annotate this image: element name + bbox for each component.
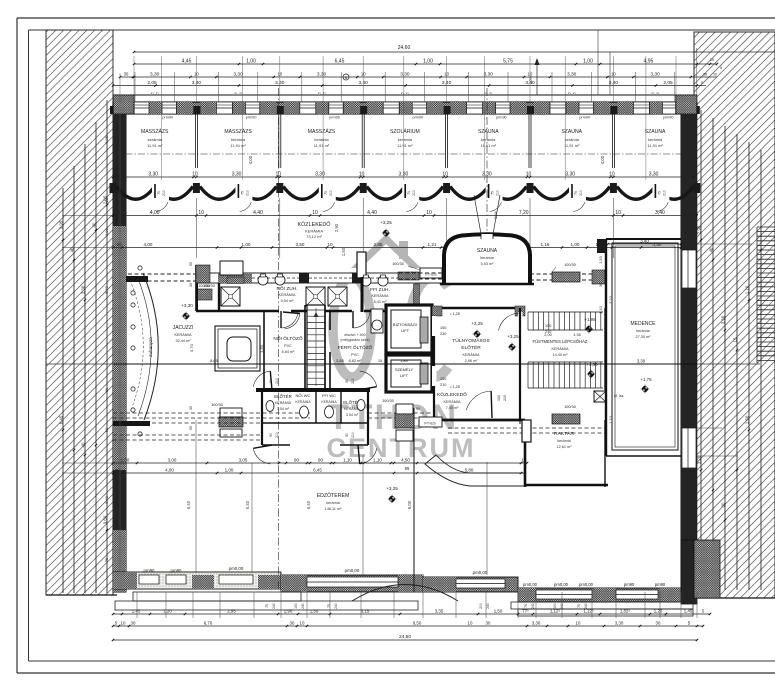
svg-text:M. lsz.: M. lsz. [614, 394, 624, 398]
svg-text:100: 100 [545, 324, 551, 328]
svg-text:40: 40 [115, 468, 121, 473]
svg-text:5,75: 5,75 [503, 59, 513, 65]
svg-text:NŐI ZUH.: NŐI ZUH. [276, 285, 297, 292]
svg-text:30: 30 [290, 621, 295, 626]
svg-text:8,65: 8,65 [210, 358, 219, 363]
svg-text:210: 210 [329, 190, 333, 196]
svg-text:210: 210 [440, 332, 446, 336]
svg-text:1,00: 1,00 [571, 242, 580, 247]
svg-text:FÉRFI ÖLTÖZŐ: FÉRFI ÖLTÖZŐ [338, 344, 373, 351]
svg-text:210: 210 [662, 190, 666, 196]
svg-text:6,40: 6,40 [186, 500, 191, 509]
svg-text:SZAUNA: SZAUNA [477, 248, 498, 254]
svg-text:2,85: 2,85 [374, 242, 383, 247]
svg-text:2,00: 2,00 [544, 333, 551, 337]
svg-text:32,44 m²: 32,44 m² [176, 339, 192, 343]
svg-text:15: 15 [489, 92, 493, 96]
svg-text:6,45: 6,45 [59, 415, 64, 424]
svg-text:3,30: 3,30 [649, 172, 659, 178]
svg-text:40: 40 [81, 442, 86, 447]
svg-text:kerámia: kerámia [231, 137, 246, 142]
svg-text:90: 90 [416, 407, 420, 411]
svg-text:240: 240 [486, 603, 490, 609]
svg-text:prm90: prm90 [579, 116, 590, 120]
svg-text:30: 30 [189, 406, 193, 410]
svg-text:15: 15 [733, 337, 738, 342]
svg-text:3,20: 3,20 [608, 295, 613, 304]
svg-text:10: 10 [426, 210, 432, 216]
svg-text:NŐI ÖLTÖZŐ: NŐI ÖLTÖZŐ [273, 335, 302, 342]
svg-text:1,82⁵: 1,82⁵ [620, 609, 631, 614]
svg-text:5,41 m²: 5,41 m² [374, 300, 388, 304]
svg-text:3,95: 3,95 [59, 220, 64, 229]
svg-text:15: 15 [317, 92, 321, 96]
svg-text:3,40: 3,40 [655, 210, 665, 216]
svg-text:kerámia: kerámia [326, 501, 340, 505]
svg-text:10: 10 [359, 172, 365, 178]
svg-text:pm0,00: pm0,00 [554, 582, 569, 587]
svg-text:15: 15 [484, 92, 488, 96]
svg-text:3,54 m²: 3,54 m² [346, 413, 359, 417]
svg-text:3,30: 3,30 [150, 72, 160, 78]
svg-text:6,40: 6,40 [245, 500, 250, 509]
svg-text:SZOLÁRIUM: SZOLÁRIUM [390, 128, 420, 135]
svg-text:elszívó + 400: elszívó + 400 [344, 333, 365, 337]
svg-text:90: 90 [318, 458, 324, 463]
svg-text:75: 75 [574, 191, 578, 195]
svg-text:1,00: 1,00 [225, 468, 234, 473]
svg-text:1,00: 1,00 [121, 458, 130, 463]
svg-text:prm90: prm90 [663, 116, 674, 120]
svg-text:3,30: 3,30 [233, 72, 243, 78]
svg-text:prm90: prm90 [162, 116, 173, 120]
svg-text:100/30: 100/30 [198, 284, 210, 288]
svg-text:40: 40 [70, 247, 75, 252]
svg-text:SZEMÉLY: SZEMÉLY [395, 367, 414, 372]
svg-text:6,45: 6,45 [313, 468, 322, 473]
svg-text:3,30: 3,30 [399, 172, 409, 178]
svg-text:MASSZÁZS: MASSZÁZS [224, 128, 252, 135]
svg-text:3,40: 3,40 [640, 239, 649, 244]
svg-text:KERÁMIA: KERÁMIA [443, 400, 461, 404]
svg-text:TÚLNYOMÁSOS: TÚLNYOMÁSOS [452, 337, 490, 344]
svg-text:240: 240 [531, 603, 535, 609]
svg-text:75: 75 [104, 557, 109, 562]
svg-text:1,35: 1,35 [573, 333, 580, 337]
svg-text:1,90: 1,90 [284, 609, 293, 614]
svg-text:240: 240 [272, 603, 276, 609]
svg-text:1,50: 1,50 [341, 247, 346, 256]
svg-text:NŐI WC: NŐI WC [296, 393, 311, 398]
svg-text:4,40: 4,40 [253, 210, 263, 216]
svg-text:10: 10 [713, 73, 717, 77]
svg-text:LIFT: LIFT [401, 328, 410, 333]
svg-text:1,10: 1,10 [598, 305, 603, 314]
svg-text:50: 50 [189, 262, 193, 266]
svg-text:KERÁMIA: KERÁMIA [462, 353, 480, 357]
svg-text:210: 210 [503, 395, 507, 401]
svg-text:prm90: prm90 [413, 116, 424, 120]
svg-text:100/30: 100/30 [564, 405, 576, 409]
svg-text:pm0,00: pm0,00 [523, 582, 538, 587]
svg-text:15: 15 [656, 92, 660, 96]
svg-text:FFI ZUH.: FFI ZUH. [370, 287, 390, 293]
svg-text:3,30: 3,30 [650, 72, 660, 78]
svg-text:12,61 m²: 12,61 m² [557, 445, 573, 449]
svg-text:11,91 m²: 11,91 m² [647, 143, 663, 148]
svg-text:FT-ES: FT-ES [424, 421, 436, 426]
svg-text:15: 15 [573, 92, 577, 96]
svg-text:1,20: 1,20 [163, 609, 172, 614]
svg-text:240: 240 [584, 603, 588, 609]
svg-text:75: 75 [577, 604, 581, 608]
svg-text:30: 30 [721, 502, 726, 507]
svg-text:40: 40 [116, 242, 122, 247]
svg-text:2,95: 2,95 [227, 609, 236, 614]
svg-text:3,35: 3,35 [435, 609, 444, 614]
svg-text:KERÁMIA: KERÁMIA [275, 401, 292, 405]
svg-text:10: 10 [528, 72, 533, 77]
svg-text:210: 210 [351, 378, 355, 384]
svg-text:JACUZZI: JACUZZI [173, 325, 194, 331]
svg-text:27,30 m²: 27,30 m² [636, 335, 652, 339]
svg-text:3,30: 3,30 [637, 359, 646, 364]
svg-text:3,30: 3,30 [567, 72, 577, 78]
svg-text:75: 75 [265, 604, 269, 608]
svg-text:100/30: 100/30 [564, 263, 576, 267]
svg-text:RAKTÁR: RAKTÁR [554, 430, 574, 437]
svg-text:1,00: 1,00 [423, 59, 433, 65]
svg-text:FT-ES: FT-ES [425, 272, 437, 277]
svg-text:5,70: 5,70 [104, 285, 109, 294]
svg-text:11,91 m²: 11,91 m² [230, 143, 246, 148]
svg-text:14,40 m²: 14,40 m² [553, 353, 569, 357]
svg-text:10: 10 [198, 210, 204, 216]
svg-text:10: 10 [611, 72, 616, 77]
svg-text:10: 10 [615, 210, 621, 216]
svg-text:240: 240 [301, 603, 305, 609]
svg-text:3,54 m²: 3,54 m² [277, 407, 290, 411]
svg-text:KERÁMIA: KERÁMIA [321, 400, 337, 404]
svg-text:3,30: 3,30 [615, 621, 624, 626]
svg-text:KÖZLEKEDŐ: KÖZLEKEDŐ [298, 221, 331, 228]
svg-text:ELŐTÉR: ELŐTÉR [274, 394, 292, 399]
svg-text:1,21: 1,21 [428, 242, 437, 247]
svg-text:60: 60 [104, 427, 109, 432]
svg-text:6,84 m²: 6,84 m² [282, 350, 296, 354]
svg-text:kerámia: kerámia [648, 137, 663, 142]
svg-text:9,50: 9,50 [413, 621, 422, 626]
svg-text:4,50: 4,50 [401, 458, 410, 463]
svg-text:75: 75 [324, 191, 328, 195]
svg-text:75: 75 [240, 191, 244, 195]
svg-text:zuhanyzó: zuhanyzó [148, 337, 153, 357]
svg-text:4,00: 4,00 [165, 468, 174, 473]
svg-text:3,30: 3,30 [532, 621, 541, 626]
svg-text:210: 210 [412, 190, 416, 196]
svg-text:100: 100 [440, 326, 446, 330]
svg-text:kerámia: kerámia [480, 256, 494, 260]
svg-text:PVC: PVC [284, 344, 292, 348]
svg-text:KERÁMIA: KERÁMIA [295, 400, 311, 404]
svg-text:BIZTONSÁGI: BIZTONSÁGI [393, 322, 417, 327]
svg-text:1,16: 1,16 [541, 242, 550, 247]
svg-text:pm90: pm90 [655, 582, 666, 587]
svg-text:150: 150 [294, 603, 298, 609]
svg-text:3,30: 3,30 [315, 172, 325, 178]
svg-text:30: 30 [189, 283, 193, 287]
svg-text:EDZŐTEREM: EDZŐTEREM [317, 492, 350, 499]
svg-text:40: 40 [709, 247, 714, 252]
svg-text:40: 40 [92, 222, 97, 227]
svg-text:+3,25: +3,25 [471, 321, 483, 326]
svg-text:60: 60 [104, 197, 109, 202]
svg-text:kerámia: kerámia [398, 137, 413, 142]
svg-text:pm0,00: pm0,00 [473, 570, 488, 575]
svg-text:3,30: 3,30 [148, 172, 158, 178]
svg-text:11,91 m²: 11,91 m² [397, 143, 413, 148]
svg-text:90: 90 [269, 433, 273, 437]
svg-text:100/30: 100/30 [392, 262, 404, 266]
svg-text:4,00: 4,00 [144, 242, 153, 247]
svg-text:10: 10 [710, 58, 714, 62]
svg-text:90: 90 [345, 433, 349, 437]
svg-text:ELŐTÉR: ELŐTÉR [461, 344, 481, 351]
svg-text:5,80: 5,80 [465, 468, 474, 473]
svg-text:kerámia: kerámia [557, 439, 571, 443]
svg-text:210: 210 [440, 383, 446, 387]
svg-text:5: 5 [720, 66, 722, 70]
svg-text:15: 15 [322, 92, 326, 96]
svg-text:100: 100 [497, 395, 501, 401]
svg-text:pm0,00: pm0,00 [345, 568, 360, 573]
svg-text:1,50: 1,50 [310, 609, 319, 614]
svg-text:11,91 m²: 11,91 m² [564, 143, 580, 148]
svg-text:prm90: prm90 [246, 116, 257, 120]
svg-text:77⁵: 77⁵ [522, 609, 529, 614]
svg-text:10: 10 [444, 72, 449, 77]
svg-text:FFI WC: FFI WC [322, 393, 336, 398]
svg-text:4,45: 4,45 [182, 59, 192, 65]
svg-text:30: 30 [703, 72, 708, 77]
svg-text:2,96 m²: 2,96 m² [465, 359, 479, 363]
svg-text:10: 10 [361, 72, 366, 77]
svg-text:75: 75 [407, 191, 411, 195]
svg-text:FÜSTMENTES LÉPCSŐHÁZ: FÜSTMENTES LÉPCSŐHÁZ [533, 339, 588, 344]
svg-text:3,30: 3,30 [317, 72, 327, 78]
svg-text:30: 30 [131, 621, 136, 626]
svg-text:4,05: 4,05 [104, 135, 109, 144]
svg-text:1,45: 1,45 [132, 609, 141, 614]
svg-text:3,30: 3,30 [81, 285, 86, 294]
svg-text:10: 10 [468, 621, 473, 626]
svg-text:75: 75 [327, 604, 331, 608]
svg-text:(mélygarázs színt): (mélygarázs színt) [340, 338, 369, 342]
svg-text:210: 210 [162, 190, 166, 196]
svg-text:75: 75 [657, 191, 661, 195]
svg-text:kerámia: kerámia [481, 137, 496, 142]
svg-text:5: 5 [701, 81, 703, 85]
svg-text:3,15: 3,15 [361, 609, 370, 614]
svg-text:24,60: 24,60 [398, 45, 411, 51]
svg-text:1,00: 1,00 [583, 59, 593, 65]
svg-text:90: 90 [269, 379, 273, 383]
svg-text:SZAUNA: SZAUNA [645, 129, 666, 135]
svg-text:150: 150 [553, 603, 557, 609]
svg-text:95: 95 [405, 466, 410, 471]
svg-text:10: 10 [609, 172, 615, 178]
svg-text:+3,25: +3,25 [386, 486, 398, 491]
svg-text:15: 15 [406, 92, 410, 96]
svg-text:8,82 m²: 8,82 m² [349, 359, 363, 363]
svg-text:5,54 m²: 5,54 m² [281, 299, 295, 303]
svg-text:prm90: prm90 [496, 116, 507, 120]
svg-text:1,50: 1,50 [745, 415, 750, 424]
svg-text:PVC: PVC [351, 353, 359, 357]
svg-text:+3,25: +3,25 [380, 220, 392, 225]
svg-text:1,00: 1,00 [242, 242, 251, 247]
svg-text:10: 10 [300, 621, 305, 626]
svg-text:15: 15 [378, 359, 382, 363]
svg-text:KERÁMIA: KERÁMIA [278, 293, 296, 297]
svg-text:210: 210 [579, 190, 583, 196]
svg-text:210: 210 [496, 190, 500, 196]
svg-text:75: 75 [524, 604, 528, 608]
svg-text:210: 210 [245, 190, 249, 196]
svg-text:6,40: 6,40 [104, 495, 109, 504]
svg-text:2,05: 2,05 [663, 80, 673, 86]
svg-text:LIFT: LIFT [400, 373, 409, 378]
svg-text:4,00: 4,00 [248, 155, 253, 164]
svg-text:30: 30 [124, 72, 129, 77]
svg-text:100/30: 100/30 [382, 399, 394, 403]
svg-text:kerámia: kerámia [565, 137, 580, 142]
svg-text:1,20: 1,20 [654, 609, 663, 614]
svg-text:7,20: 7,20 [519, 210, 529, 216]
svg-text:73,12 m²: 73,12 m² [306, 234, 322, 239]
svg-text:50: 50 [104, 387, 109, 392]
svg-text:1,10: 1,10 [373, 458, 382, 463]
svg-text:1,10: 1,10 [343, 458, 352, 463]
svg-text:10: 10 [327, 242, 333, 247]
svg-text:prm90: prm90 [329, 116, 340, 120]
svg-text:10: 10 [192, 172, 198, 178]
svg-text:KERÁMIA: KERÁMIA [305, 229, 323, 234]
svg-text:10: 10 [526, 172, 532, 178]
svg-text:3,00: 3,00 [168, 458, 177, 463]
svg-text:11,91 m²: 11,91 m² [314, 143, 330, 148]
svg-text:20%: 20% [528, 76, 533, 84]
svg-text:1,10: 1,10 [608, 415, 613, 424]
svg-text:20%: 20% [494, 211, 498, 219]
svg-text:7,40 m²: 7,40 m² [446, 406, 460, 410]
svg-text:pm0,00: pm0,00 [229, 566, 244, 571]
svg-text:6,45: 6,45 [335, 59, 345, 65]
svg-text:100: 100 [440, 377, 446, 381]
svg-text:1,10: 1,10 [745, 285, 750, 294]
svg-text:15: 15 [651, 92, 655, 96]
svg-text:15: 15 [151, 92, 155, 96]
svg-text:1,80: 1,80 [400, 358, 409, 363]
svg-text:15: 15 [156, 92, 160, 96]
svg-text:50: 50 [189, 426, 193, 430]
svg-text:1,00: 1,00 [246, 59, 256, 65]
svg-text:pm90: pm90 [144, 568, 156, 573]
svg-text:pm0,00: pm0,00 [579, 582, 594, 587]
svg-text:9,60: 9,60 [103, 515, 108, 524]
svg-text:2,85: 2,85 [336, 358, 345, 363]
svg-text:+3,25: +3,25 [507, 334, 519, 339]
svg-text:200: 200 [479, 603, 483, 609]
svg-text:1,50: 1,50 [598, 255, 603, 264]
svg-text:4,00: 4,00 [600, 155, 605, 164]
svg-text:210: 210 [351, 432, 355, 438]
svg-text:30: 30 [598, 282, 603, 287]
svg-text:pm90: pm90 [171, 568, 183, 573]
svg-text:146,11 m²: 146,11 m² [325, 507, 343, 511]
svg-text:90: 90 [345, 379, 349, 383]
svg-text:3,30: 3,30 [400, 72, 410, 78]
svg-text:5,53 m²: 5,53 m² [481, 262, 495, 266]
svg-text:pm90: pm90 [624, 582, 635, 587]
svg-text:3,30: 3,30 [484, 72, 494, 78]
svg-text:3,30: 3,30 [721, 315, 726, 324]
svg-text:KERÁMIA: KERÁMIA [551, 347, 569, 351]
svg-text:SZAUNA: SZAUNA [478, 129, 499, 135]
svg-text:MEDENCE: MEDENCE [630, 321, 656, 327]
svg-text:• 1,25: • 1,25 [450, 312, 460, 316]
svg-text:6,70: 6,70 [204, 621, 213, 626]
svg-text:30: 30 [486, 621, 491, 626]
svg-text:210: 210 [275, 432, 279, 438]
svg-text:5,70: 5,70 [189, 343, 194, 352]
svg-text:10: 10 [442, 172, 448, 178]
svg-text:1,45: 1,45 [684, 609, 693, 614]
svg-text:10: 10 [312, 210, 318, 216]
svg-text:kerámia: kerámia [636, 329, 650, 333]
svg-text:1,50: 1,50 [494, 609, 503, 614]
svg-text:90: 90 [294, 458, 300, 463]
svg-text:10: 10 [521, 458, 527, 463]
svg-text:3,30: 3,30 [232, 172, 242, 178]
svg-text:kerámia: kerámia [148, 137, 163, 142]
svg-text:10: 10 [194, 72, 199, 77]
svg-text:15: 15 [234, 92, 238, 96]
svg-text:KERÁMIA: KERÁMIA [174, 333, 192, 337]
svg-text:KÖZLEKEDŐ: KÖZLEKEDŐ [437, 391, 467, 398]
svg-text:11,91 m²: 11,91 m² [481, 143, 497, 148]
svg-text:+3,30: +3,30 [181, 303, 193, 308]
svg-text:30: 30 [656, 621, 661, 626]
svg-text:MASSZÁZS: MASSZÁZS [141, 128, 169, 135]
svg-text:240: 240 [334, 603, 338, 609]
svg-text:15: 15 [401, 92, 405, 96]
svg-text:240: 240 [560, 603, 564, 609]
svg-text:75: 75 [491, 191, 495, 195]
svg-text:3,30: 3,30 [565, 172, 575, 178]
svg-text:2,90: 2,90 [104, 227, 109, 236]
svg-text:4,40: 4,40 [367, 210, 377, 216]
svg-text:11,91 m²: 11,91 m² [147, 143, 163, 148]
svg-text:24,60: 24,60 [399, 634, 411, 640]
svg-text:KERÁMIA: KERÁMIA [371, 294, 389, 298]
svg-text:10: 10 [121, 621, 126, 626]
svg-text:2,90: 2,90 [334, 223, 339, 232]
svg-text:4,00: 4,00 [150, 210, 160, 216]
svg-text:75: 75 [157, 191, 161, 195]
svg-text:4,95: 4,95 [644, 59, 654, 65]
svg-text:• 1,25: • 1,25 [450, 385, 460, 389]
